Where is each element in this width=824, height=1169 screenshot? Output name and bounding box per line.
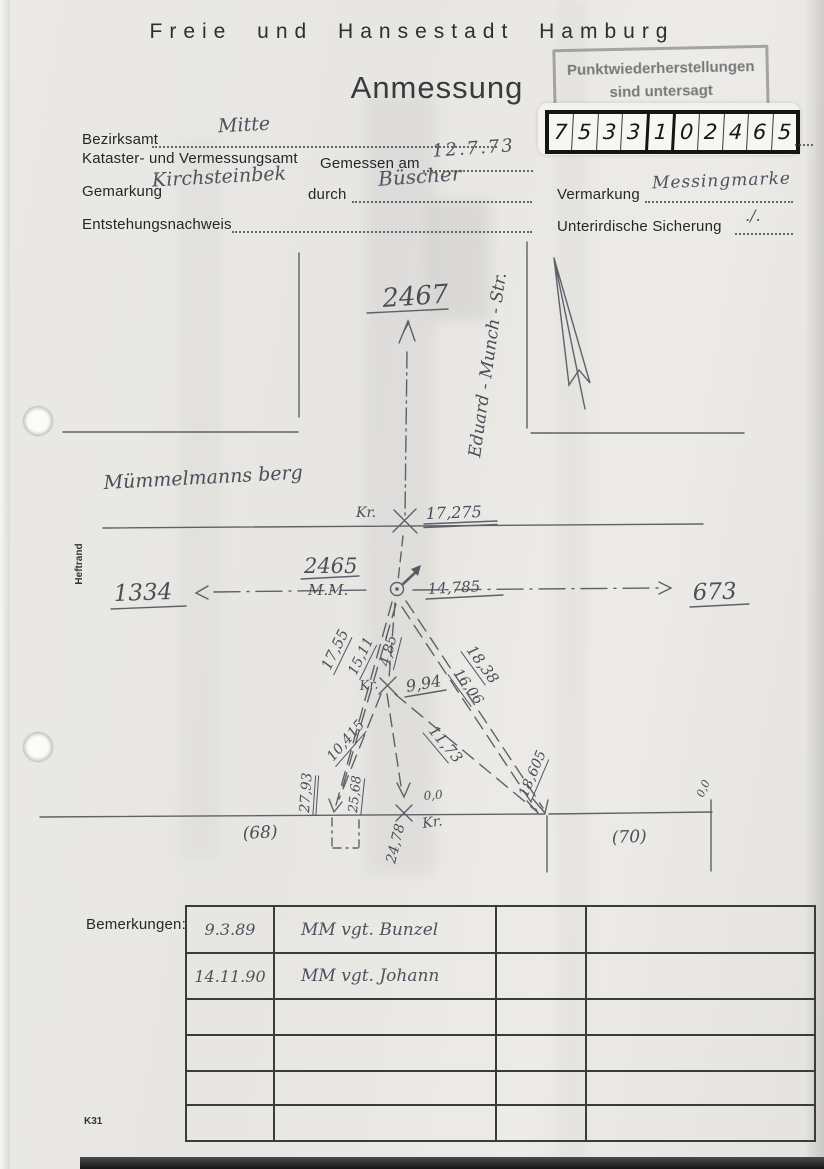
point-label-1334: 1334 [113,579,172,607]
bemerkung-cell [587,954,814,1000]
bemerkung-text-cell [275,1000,497,1036]
street-label-eduard-munch: Eduard - Munch - Str. [465,271,511,459]
measure-485: 4,85 [377,633,402,670]
bemerkung-cell [587,907,814,954]
measure-2568: 25,68 [346,775,365,816]
measure-zero-center: 0,0 [423,787,444,803]
bemerkung-cell [497,954,587,1000]
bemerkungen-label: Bemerkungen: [86,916,186,933]
svg-text:25,68: 25,68 [346,775,365,815]
bemerkung-cell [497,1000,587,1036]
bemerkung-cell [497,1106,587,1140]
corner-right [527,242,744,433]
measure-14785: 14,785 [427,577,480,598]
bemerkung-cell [497,1072,587,1106]
point-label-673: 673 [692,578,737,606]
bemerkung-cell [497,1036,587,1072]
measure-2793: 27,93 [297,772,319,815]
svg-text:0,0: 0,0 [694,778,713,799]
bemerkung-cell [587,1106,814,1140]
point-label-2467: 2467 [380,279,450,314]
kr-label-bottom: Kr. [420,813,443,832]
bemerkung-cell [587,1000,814,1036]
bemerkung-cell [497,907,587,954]
bemerkung-date-cell [187,1072,275,1106]
form-code: K31 [84,1116,102,1127]
kr-label-top: Kr. [355,505,376,521]
measure-zero-right: 0,0 [694,778,713,799]
bemerkung-date-cell [187,1000,275,1036]
bemerkung-date-cell: 9.3.89 [187,907,275,954]
scanned-form-page: Freie und Hansestadt Hamburg Anmessung P… [0,0,824,1169]
measure-1173: 11,73 [423,720,466,767]
bemerkung-text-cell [275,1072,497,1106]
measure-2478: 24,78 [383,822,408,866]
bemerkung-text-cell: MM vgt. Johann [275,954,497,1000]
kr-label-middle: Kr. [358,677,379,694]
svg-text:4,85: 4,85 [377,634,400,669]
parcel-label-68: (68) [242,822,278,844]
bemerkung-cell [587,1036,814,1072]
bemerkung-cell [587,1072,814,1106]
point-label-2465: 2465 [303,554,357,578]
parcel-label-70: (70) [611,827,647,848]
bemerkung-date-cell: 14.11.90 [187,954,275,1000]
street-label-muemmelmannsberg: Mümmelmanns berg [102,462,303,494]
svg-text:24,78: 24,78 [383,822,408,866]
bemerkung-date-cell [187,1036,275,1072]
bemerkung-text-cell [275,1106,497,1140]
bemerkung-text-cell: MM vgt. Bunzel [275,907,497,954]
bemerkung-text-cell [275,1036,497,1072]
point-label-mm: M.M. [307,581,348,599]
bemerkungen-table: 9.3.89 MM vgt. Bunzel 14.11.90 MM vgt. J… [185,905,816,1142]
corner-left [63,253,299,432]
north-arrow-icon [554,258,590,409]
measure-17275: 17,275 [425,502,482,523]
bemerkung-date-cell [187,1106,275,1140]
